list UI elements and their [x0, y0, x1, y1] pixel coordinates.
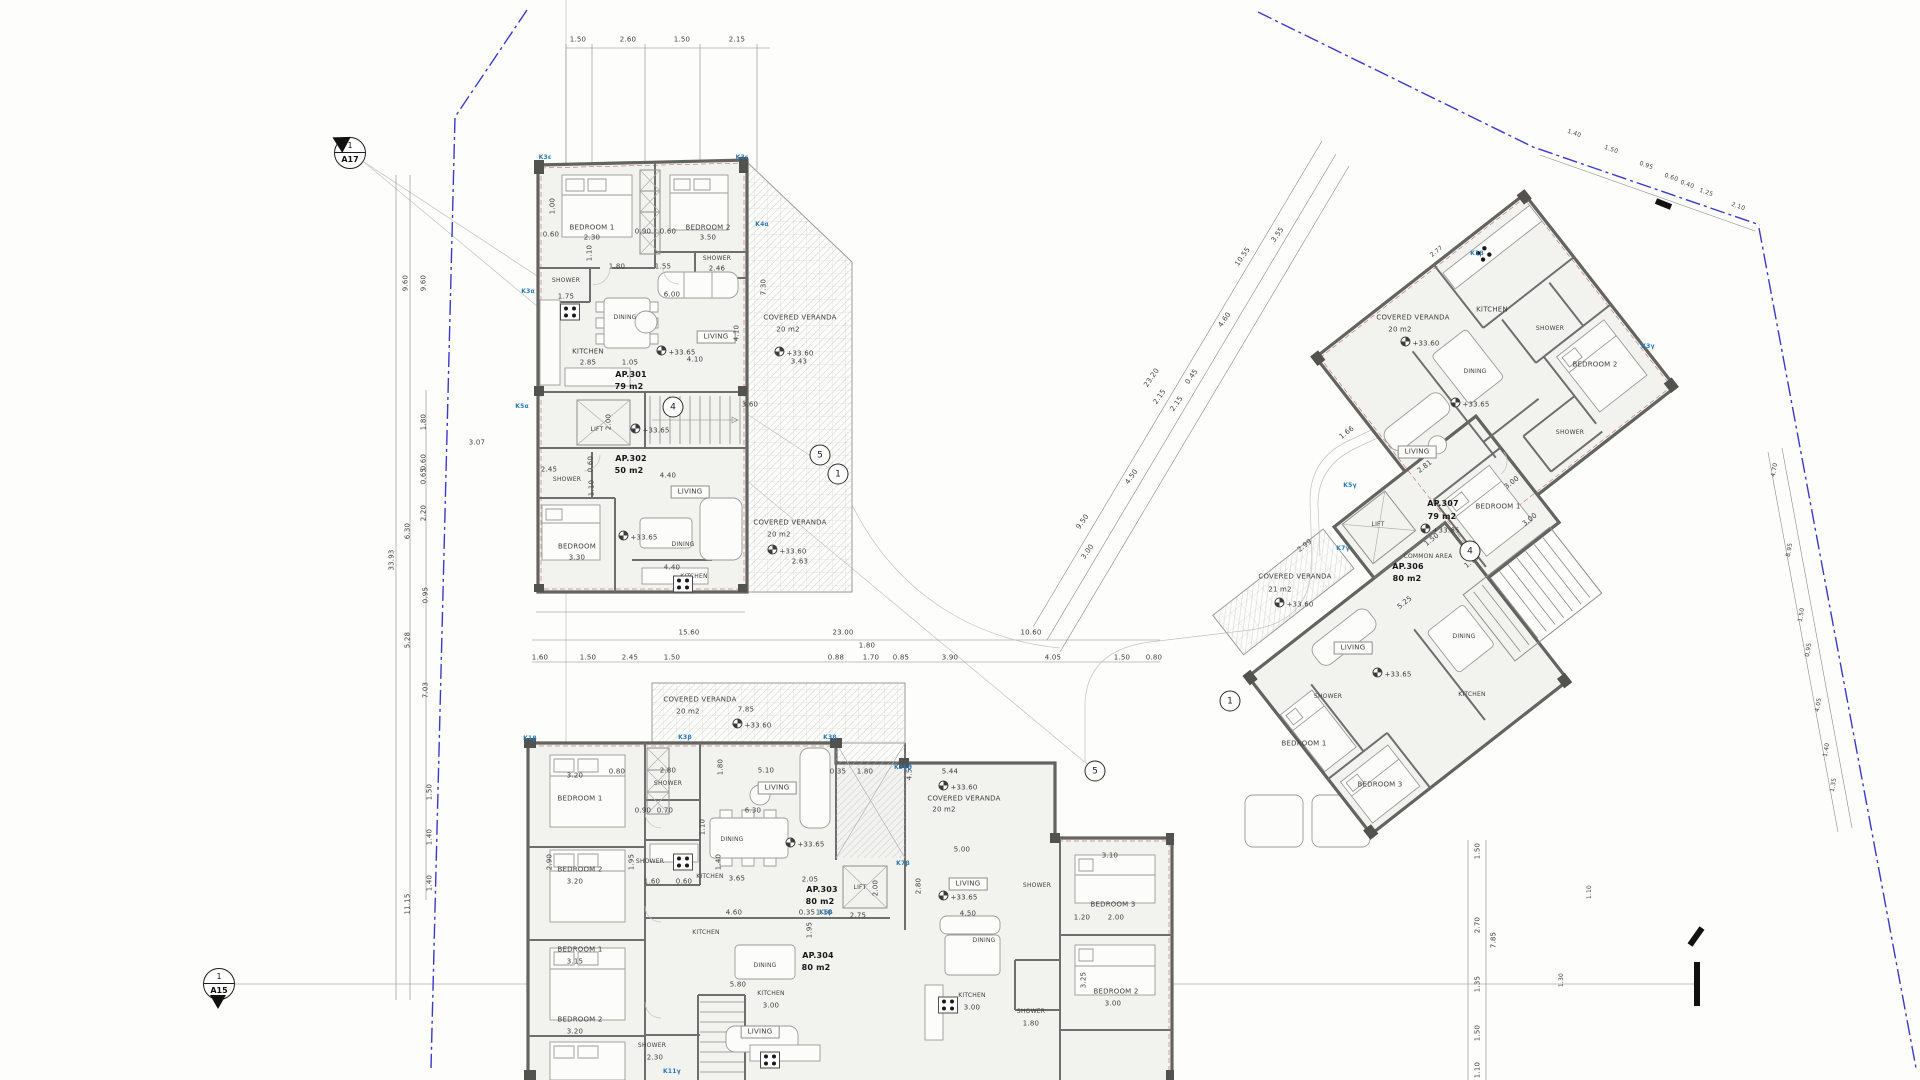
label-kitchen: KITCHEN: [757, 991, 784, 997]
label-bedroom-2: BEDROOM 2: [1093, 989, 1138, 996]
label-living: LIVING: [697, 331, 736, 344]
label-bedroom-2: BEDROOM 2: [685, 225, 730, 232]
label-1-50: 1.50: [1475, 1025, 1482, 1041]
label-k36-: K36β: [894, 765, 912, 771]
label-k3-: K3β: [678, 735, 692, 741]
label-1-80: 1.80: [718, 759, 725, 775]
label-kitchen: KITCHEN: [692, 930, 719, 936]
label-6-30: 6.30: [745, 808, 761, 815]
stove-icon: [673, 576, 693, 593]
stove-icon: [938, 997, 958, 1014]
label-4-05: 4.05: [1815, 698, 1823, 713]
label-kitchen: KITCHEN: [1476, 307, 1508, 314]
label-2-63: 2.63: [792, 559, 808, 566]
label-0-45: 0.45: [1184, 368, 1199, 385]
label-20-m2: 20 m2: [932, 807, 955, 814]
label-covered-veranda: COVERED VERANDA: [1376, 315, 1449, 322]
label-3-20: 3.20: [567, 773, 583, 780]
label-0-90: 0.90: [635, 229, 651, 236]
label-80-m2: 80 m2: [1393, 575, 1422, 583]
label-1-50: 1.50: [1423, 532, 1440, 548]
label-79-m2: 79 m2: [1428, 513, 1457, 521]
label-living: LIVING: [671, 486, 710, 499]
label-2-45: 2.45: [622, 655, 638, 662]
ref-circle-5: 5: [810, 445, 831, 466]
label-4-60: 4.60: [726, 910, 742, 917]
label-bedroom-2: BEDROOM 2: [1572, 362, 1617, 369]
label-79-m2: 79 m2: [615, 383, 644, 391]
label-2-81: 2.81: [1416, 459, 1433, 475]
label-living: LIVING: [1334, 642, 1373, 655]
label--33-65: +33.65: [785, 838, 824, 849]
label-2-70: 2.70: [1475, 917, 1482, 933]
label-2-15: 2.15: [1152, 388, 1167, 405]
level-symbol-icon: [938, 781, 948, 791]
floor-plan-canvas: { "meta":{"accent_blue":"#2878b8","bound…: [0, 0, 1920, 1080]
label-dining: DINING: [754, 963, 777, 969]
label-0-60: 0.60: [588, 456, 595, 472]
label--33-60: +33.60: [938, 781, 977, 792]
label-bedroom-1: BEDROOM 1: [569, 225, 614, 232]
level-symbol-icon: [767, 545, 777, 555]
label-8-95: 8.95: [1786, 543, 1794, 558]
label-1-40: 1.40: [1566, 129, 1581, 139]
label-4-10: 4.10: [734, 325, 741, 341]
label-bedroom-2: BEDROOM 2: [557, 1017, 602, 1024]
label-0-88: 0.88: [828, 655, 844, 662]
label-dining: DINING: [721, 837, 744, 843]
label-bedroom-1: BEDROOM 1: [557, 947, 602, 954]
ref-circle-1: 1: [1220, 691, 1241, 712]
label-dining: DINING: [1453, 634, 1476, 640]
label-6-00: 6.00: [664, 292, 680, 299]
label-living: LIVING: [758, 782, 797, 795]
label-dining: DINING: [973, 938, 996, 944]
label-7-85: 7.85: [1491, 932, 1498, 948]
label-lift: LIFT: [591, 427, 604, 433]
label-1-50: 1.50: [580, 655, 596, 662]
label-covered-veranda: COVERED VERANDA: [663, 697, 736, 704]
label-1-10: 1.10: [587, 245, 594, 261]
label-shower: SHOWER: [1017, 1009, 1045, 1015]
label-1-00: 1.00: [550, 198, 557, 214]
label-0-80: 0.80: [1146, 655, 1162, 662]
label--33-65: +33.65: [938, 891, 977, 902]
label-2-10: 2.10: [1730, 202, 1745, 212]
label-2-30: 2.30: [584, 235, 600, 242]
label-2-85: 2.85: [580, 360, 596, 367]
stove-icon: [560, 304, 580, 321]
label-0-35: 0.35: [799, 910, 815, 917]
ref-circle-4: 4: [1460, 541, 1481, 562]
label-ap-304: AP.304: [802, 952, 834, 960]
level-symbol-icon: [785, 838, 795, 848]
label-11-15: 11.15: [405, 893, 412, 914]
label-4-50: 4.50: [960, 911, 976, 918]
level-symbol-icon: [938, 891, 948, 901]
level-symbol-icon: [630, 424, 640, 434]
label-4-10: 4.10: [687, 357, 703, 364]
label-3-90: 3.90: [942, 655, 958, 662]
label-2-45: 2.45: [541, 467, 557, 474]
label-0-65: 0.65: [421, 468, 428, 484]
ref-circle-1: 1: [828, 464, 849, 485]
label-20-m2: 20 m2: [676, 709, 699, 716]
label-shower: SHOWER: [1556, 430, 1584, 436]
label-23-20: 23.20: [1143, 367, 1161, 388]
label-3-00: 3.00: [763, 1003, 779, 1010]
label-0-90: 0.90: [635, 808, 651, 815]
label-2-60: 2.60: [620, 37, 636, 44]
label-4-50: 4.50: [1124, 468, 1139, 485]
label-3-00: 3.00: [1521, 512, 1538, 528]
label-2-80: 2.80: [660, 768, 676, 775]
label-shower: SHOWER: [552, 278, 580, 284]
label-15-60: 15.60: [678, 630, 699, 637]
label-2-90: 2.90: [547, 854, 554, 870]
label--33-65: +33.65: [618, 531, 657, 542]
label-1-70: 1.70: [863, 655, 879, 662]
label-covered-veranda: COVERED VERANDA: [1258, 574, 1331, 581]
label-80-m2: 80 m2: [806, 898, 835, 906]
label-3-00: 3.00: [1105, 1001, 1121, 1008]
label-9-60: 9.60: [421, 275, 428, 291]
label-3-43: 3.43: [791, 359, 807, 366]
label-ap-306: AP.306: [1392, 563, 1424, 571]
label-2-75: 2.75: [850, 913, 866, 920]
label-1-40: 1.40: [427, 875, 434, 891]
label-1-80: 1.80: [421, 414, 428, 430]
label-shower: SHOWER: [1536, 326, 1564, 332]
label-20-m2: 20 m2: [1388, 327, 1411, 334]
ref-circle-4: 4: [663, 397, 684, 418]
label-1-50: 1.50: [1798, 608, 1806, 623]
level-symbol-icon: [1420, 524, 1430, 534]
label-7-85: 7.85: [738, 707, 754, 714]
label-bedroom-1: BEDROOM 1: [557, 796, 602, 803]
label-k1-: K1β: [1470, 251, 1484, 257]
label-0-60: 0.60: [660, 229, 676, 236]
label-k3-: K3α: [521, 289, 535, 295]
label-5-25: 5.25: [1396, 595, 1413, 611]
label-5-44: 5.44: [942, 769, 958, 776]
label-1-05: 1.05: [622, 360, 638, 367]
label-1-20: 1.20: [1074, 915, 1090, 922]
level-symbol-icon: [1274, 598, 1284, 608]
label-4-05: 4.05: [1045, 655, 1061, 662]
label-1-40: 1.40: [427, 829, 434, 845]
label-1-10: 1.10: [1587, 885, 1593, 899]
label-1-50: 1.50: [1475, 843, 1482, 859]
label-6-30: 6.30: [405, 523, 412, 539]
label-3-20: 3.20: [567, 879, 583, 886]
label-shower: SHOWER: [638, 1043, 666, 1049]
label-k6-: K6β: [819, 910, 833, 916]
label-1-25: 1.25: [1698, 188, 1713, 198]
label-3-65: 3.65: [729, 876, 745, 883]
label-dining: DINING: [672, 542, 695, 548]
label-bedroom-1: BEDROOM 1: [1475, 504, 1520, 511]
label--33-65: +33.65: [1420, 524, 1459, 535]
label-0-85: 0.85: [893, 655, 909, 662]
label-1-50: 1.50: [1114, 655, 1130, 662]
label-1-10: 1.10: [700, 819, 707, 835]
level-symbol-icon: [656, 346, 666, 356]
label-0-95: 0.95: [1638, 161, 1653, 171]
label-3-25: 3.25: [1081, 972, 1088, 988]
stove-icon: [673, 854, 693, 871]
level-symbol-icon: [1450, 398, 1460, 408]
label-5-80: 5.80: [730, 982, 746, 989]
label-k5-: K5γ: [1343, 483, 1357, 489]
label-shower: SHOWER: [703, 256, 731, 262]
label-kitchen: KITCHEN: [1458, 692, 1485, 698]
label-2-46: 2.46: [709, 266, 725, 273]
label-1-55: 1.55: [655, 264, 671, 271]
label-shower: SHOWER: [1023, 883, 1051, 889]
label-1-60: 1.60: [532, 655, 548, 662]
label-0-60: 0.60: [543, 232, 559, 239]
label-7-03: 7.03: [423, 682, 430, 698]
label-1-75: 1.75: [558, 294, 574, 301]
label-1-80: 1.80: [1023, 1021, 1039, 1028]
label-20-m2: 20 m2: [776, 327, 799, 334]
label-2-99: 2.99: [1296, 538, 1313, 554]
label-2-00: 2.00: [1108, 915, 1124, 922]
label-2-15: 2.15: [729, 37, 745, 44]
label-2-00: 2.00: [873, 880, 880, 896]
label--33-60: +33.60: [767, 545, 806, 556]
label-3-10: 3.10: [1102, 853, 1118, 860]
label-3-15: 3.15: [567, 959, 583, 966]
label-1-50: 1.50: [674, 37, 690, 44]
label-4-70: 4.70: [1771, 463, 1779, 478]
label-2-15: 2.15: [1169, 395, 1184, 412]
label-9-60: 9.60: [403, 275, 410, 291]
label-bedroom: BEDROOM: [558, 544, 596, 551]
label-k3-: K3ε: [736, 155, 749, 161]
label-shower: SHOWER: [654, 781, 682, 787]
label-5-00: 5.00: [954, 847, 970, 854]
label-2-77: 2.77: [1430, 245, 1445, 258]
label-1-50: 1.50: [570, 37, 586, 44]
label-lift: LIFT: [854, 885, 867, 891]
label-k7-: K7γ: [1336, 546, 1350, 552]
label-1-66: 1.66: [1338, 425, 1355, 441]
label-ap-302: AP.302: [615, 455, 647, 463]
label-4-40: 4.40: [664, 565, 680, 572]
label-0-80: 0.80: [609, 769, 625, 776]
label-3-00: 3.00: [1503, 475, 1520, 491]
label--33-65: +33.65: [656, 346, 695, 357]
label-2-30: 2.30: [647, 1055, 663, 1062]
label--33-65: +33.65: [1372, 668, 1411, 679]
label-shower: SHOWER: [553, 477, 581, 483]
label-kitchen: KITCHEN: [572, 349, 604, 356]
label-1-95: 1.95: [629, 854, 636, 870]
label-1-60: 1.60: [644, 879, 660, 886]
label-4-60: 4.60: [1217, 311, 1232, 328]
label-3-20: 3.20: [567, 1029, 583, 1036]
label-2-20: 2.20: [421, 505, 428, 521]
label-shower: SHOWER: [1314, 694, 1342, 700]
label-3-07: 3.07: [469, 440, 485, 447]
label--33-65: +33.65: [630, 424, 669, 435]
level-symbol-icon: [1400, 337, 1410, 347]
label-0-95: 0.95: [423, 587, 430, 603]
label-ap-303: AP.303: [806, 886, 838, 894]
label-21-m2: 21 m2: [1268, 587, 1291, 594]
label-1-80: 1.80: [857, 769, 873, 776]
label-1-30: 1.30: [1559, 973, 1565, 987]
label-0-95: 0.95: [1805, 643, 1813, 658]
label-shower: SHOWER: [636, 859, 664, 865]
level-symbol-icon: [732, 719, 742, 729]
level-symbol-icon: [618, 531, 628, 541]
label-k5-: K5α: [515, 404, 529, 410]
label-k3-: K3β: [823, 735, 837, 741]
label-bedroom-2: BEDROOM 2: [557, 867, 602, 874]
label--33-60: +33.60: [1274, 598, 1313, 609]
label-covered-veranda: COVERED VERANDA: [927, 796, 1000, 803]
label-bedroom-3: BEDROOM 3: [1090, 902, 1135, 909]
label-1-35: 1.35: [1830, 778, 1838, 793]
label-k1-: K1β: [523, 736, 537, 742]
label-bedroom-1: BEDROOM 1: [1281, 741, 1326, 748]
label-1-50: 1.50: [427, 784, 434, 800]
label-0-60: 0.60: [676, 879, 692, 886]
label-bedroom-3: BEDROOM 3: [1357, 782, 1402, 789]
label-2-05: 2.05: [802, 877, 818, 884]
label-2-80: 2.80: [916, 878, 923, 894]
label-2-00: 2.00: [606, 414, 613, 430]
label--33-60: +33.60: [732, 719, 771, 730]
label-1-50: 1.50: [664, 655, 680, 662]
ref-circle-5: 5: [1085, 761, 1106, 782]
label-80-m2: 80 m2: [802, 964, 831, 972]
label-1-35: 1.35: [1475, 976, 1482, 992]
label-50-m2: 50 m2: [615, 467, 644, 475]
label--33-60: +33.60: [774, 347, 813, 358]
label-k7-: K7β: [896, 861, 910, 867]
label-23-00: 23.00: [832, 630, 853, 637]
label-1-95: 1.95: [807, 922, 814, 938]
label-k3-: K3ε: [539, 155, 552, 161]
label-layer: 1.502.601.502.15BEDROOM 12.30BEDROOM 23.…: [0, 0, 1920, 1080]
label-5-28: 5.28: [405, 632, 412, 648]
label-10-55: 10.55: [1234, 246, 1252, 267]
label-living: LIVING: [741, 1026, 780, 1039]
label-k4-: K4α: [755, 222, 769, 228]
label-k3-: K3γ: [1641, 344, 1655, 350]
label-covered-veranda: COVERED VERANDA: [763, 315, 836, 322]
label-1-40: 1.40: [716, 854, 723, 870]
label-ap-307: AP.307: [1427, 500, 1459, 508]
label-0-35: 0.35: [830, 769, 846, 776]
label--33-60: +33.60: [1400, 337, 1439, 348]
label-1-80: 1.80: [609, 264, 625, 271]
label-lift: LIFT: [1372, 522, 1385, 528]
label-1-10: 1.10: [1475, 1062, 1482, 1078]
label-3-55: 3.55: [1270, 226, 1285, 243]
label-covered-veranda: COVERED VERANDA: [753, 520, 826, 527]
label-7-30: 7.30: [761, 279, 768, 295]
label-0-70: 0.70: [657, 808, 673, 815]
label-4-40: 4.40: [660, 473, 676, 480]
label-5-10: 5.10: [758, 768, 774, 775]
label-3-00: 3.00: [964, 1005, 980, 1012]
stove-icon: [760, 1052, 780, 1069]
label-living: LIVING: [1398, 446, 1437, 459]
label--33-65: +33.65: [1450, 398, 1489, 409]
label-0-60: 0.60: [1663, 173, 1678, 183]
label-k11-: K11γ: [663, 1069, 681, 1075]
label-1-80: 1.80: [859, 643, 875, 650]
label-kitchen: KITCHEN: [958, 993, 985, 999]
label-1-10: 1.10: [589, 480, 596, 496]
label-kitchen: KITCHEN: [696, 874, 723, 880]
label-common-area: COMMON AREA: [1404, 554, 1453, 560]
label-3-00: 3.00: [1080, 543, 1095, 560]
label-9-50: 9.50: [1075, 513, 1090, 530]
label-1-40: 1.40: [1823, 743, 1831, 758]
label-ap-301: AP.301: [615, 371, 647, 379]
level-symbol-icon: [1372, 668, 1382, 678]
label-living: LIVING: [949, 878, 988, 891]
label-3-50: 3.50: [700, 235, 716, 242]
label-10-60: 10.60: [1020, 630, 1041, 637]
label-3-60: 3.60: [742, 402, 758, 409]
label-3-30: 3.30: [569, 555, 585, 562]
label-1-50: 1.50: [1603, 145, 1618, 155]
label-33-93: 33.93: [389, 549, 396, 570]
label-0-40: 0.40: [1679, 180, 1694, 190]
label-dining: DINING: [1464, 369, 1487, 375]
label-dining: DINING: [614, 315, 637, 321]
level-symbol-icon: [774, 347, 784, 357]
label-20-m2: 20 m2: [767, 532, 790, 539]
